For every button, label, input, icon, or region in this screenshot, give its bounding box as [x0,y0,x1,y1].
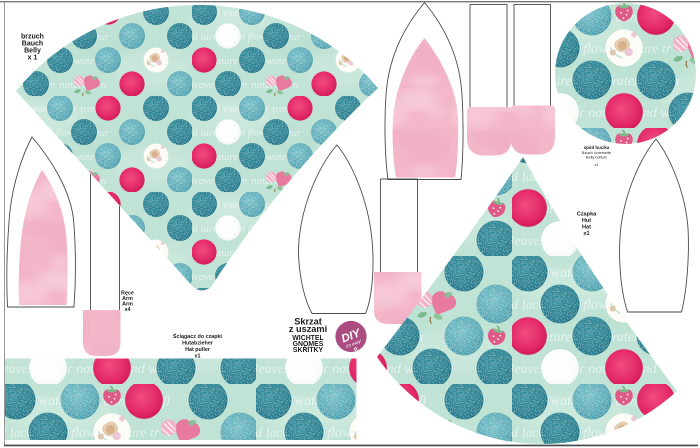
svg-text:Hutabzieher: Hutabzieher [182,341,214,347]
svg-text:Ściągacz do czapki: Ściągacz do czapki [173,333,223,340]
svg-text:x1: x1 [594,163,598,167]
svg-text:Hut: Hut [582,218,591,224]
svg-text:Belly bottom: Belly bottom [586,156,607,160]
svg-text:Hat: Hat [582,225,591,231]
svg-text:Bauch: Bauch [22,41,43,48]
svg-text:Czapka: Czapka [577,212,597,218]
svg-text:brzuch: brzuch [21,34,44,41]
svg-text:spód bucika: spód bucika [584,145,610,150]
svg-text:x1: x1 [583,231,589,237]
svg-text:SKŘÍTKY: SKŘÍTKY [293,345,324,354]
svg-text:z uszami: z uszami [289,324,327,334]
svg-text:x4: x4 [125,307,131,313]
svg-text:Bauch Unterseite: Bauch Unterseite [582,151,611,155]
svg-text:Hat puller: Hat puller [185,347,211,353]
svg-text:Belly: Belly [24,48,41,55]
svg-text:x 1: x 1 [28,55,38,62]
